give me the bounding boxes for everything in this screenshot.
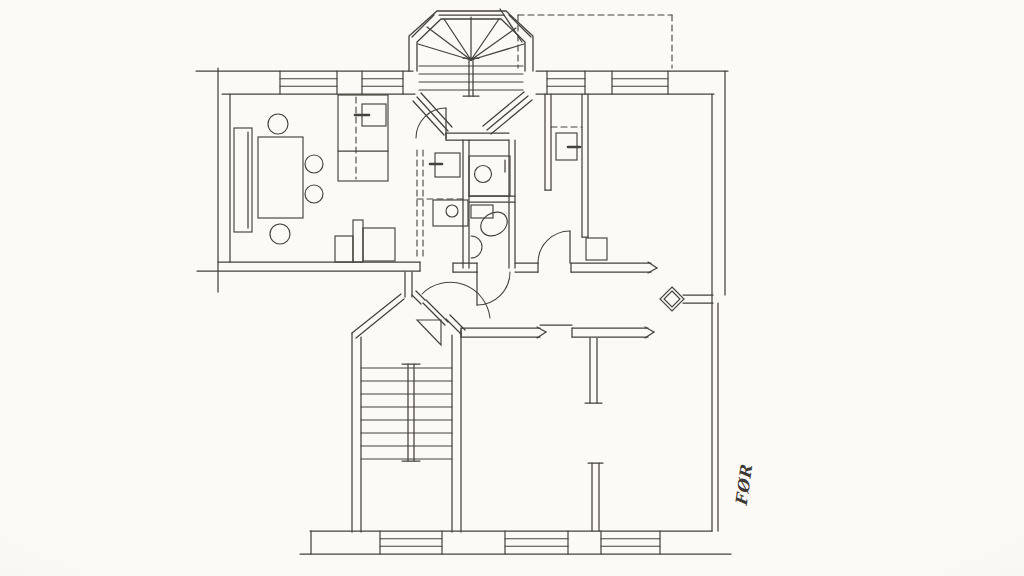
bay-window-tl xyxy=(412,15,434,37)
cabinet xyxy=(338,95,388,181)
wall-arrow-s1a xyxy=(537,327,546,332)
bay-window-ll-1 xyxy=(413,101,444,135)
sideboard xyxy=(234,128,252,232)
bay-window-lr-2 xyxy=(487,96,528,130)
wc-sink xyxy=(475,166,492,183)
counter-small xyxy=(335,236,353,262)
bay-window-ll-2 xyxy=(417,97,448,131)
wall-arrow-ne-1 xyxy=(648,262,657,268)
door-leaf-landing-2 xyxy=(426,300,448,322)
floor-plan-paper: FØR xyxy=(0,0,1024,576)
tower-fan-7 xyxy=(471,44,524,60)
dining-table xyxy=(258,137,303,218)
counter-bar xyxy=(353,220,363,262)
bay-window-lr-1 xyxy=(491,100,532,134)
door-arc-wc xyxy=(477,272,510,305)
wall-arrow-s1b xyxy=(537,332,546,338)
wall-chamfer-right-low-1 xyxy=(446,319,461,334)
chimney-pillar xyxy=(586,238,607,260)
tower-fan-5 xyxy=(471,19,499,60)
stair-triangle xyxy=(417,320,441,345)
tower-fan-2 xyxy=(427,27,471,60)
wall-chamfer-right-up-1 xyxy=(412,295,421,304)
toilet-bowl xyxy=(476,207,511,240)
floor-plan-svg xyxy=(0,0,1024,576)
tower-fan-1 xyxy=(418,44,471,60)
chair-2 xyxy=(305,155,323,173)
chair-4 xyxy=(270,224,290,244)
wall-arrow-s2b xyxy=(645,332,654,338)
chair-3 xyxy=(305,185,323,203)
door-arc-room xyxy=(538,231,570,263)
wall-arrow-ne-2 xyxy=(648,268,657,273)
wall-chamfer-left-2 xyxy=(356,299,404,338)
wall-chamfer-right-low-2 xyxy=(450,315,465,330)
counter-square xyxy=(363,228,395,261)
kitchen-sink xyxy=(446,205,458,217)
tower-fan-6 xyxy=(471,28,516,60)
door-leaf-landing-1 xyxy=(423,303,445,325)
wc-cistern xyxy=(471,205,493,218)
wc-corner-sink xyxy=(471,236,482,258)
chair-1 xyxy=(268,114,288,134)
bay-window-tr xyxy=(509,15,531,37)
wall-arrow-s2a xyxy=(645,327,654,332)
wall-chamfer-left-1 xyxy=(352,294,401,333)
bay-window-lr-3 xyxy=(483,92,524,126)
tower-fan-3 xyxy=(444,19,471,60)
